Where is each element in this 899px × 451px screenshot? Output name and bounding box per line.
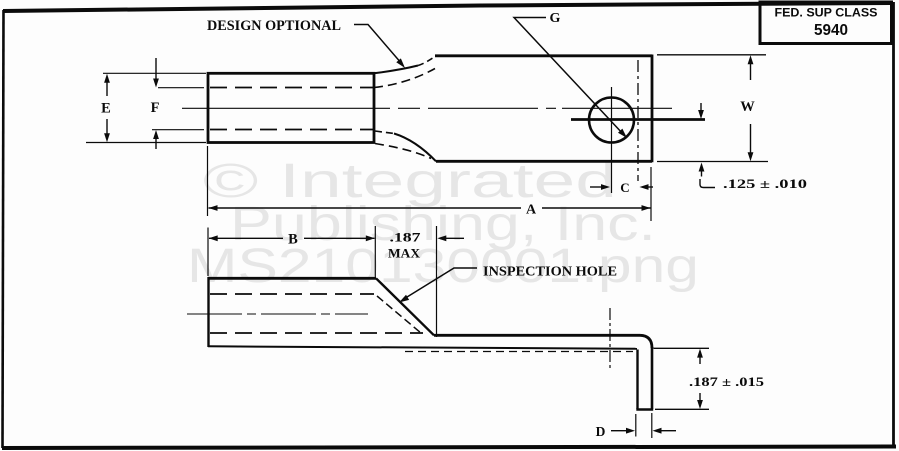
svg-text:.187: .187 xyxy=(390,230,422,245)
svg-text:INSPECTION HOLE: INSPECTION HOLE xyxy=(483,265,617,280)
svg-text:E: E xyxy=(101,101,111,117)
svg-text:F: F xyxy=(151,100,160,116)
svg-text:FED. SUP CLASS: FED. SUP CLASS xyxy=(775,6,878,20)
svg-text:A: A xyxy=(526,203,537,218)
svg-text:G: G xyxy=(550,11,561,26)
svg-text:DESIGN OPTIONAL: DESIGN OPTIONAL xyxy=(207,18,341,34)
svg-text:MAX: MAX xyxy=(388,246,421,261)
svg-text:C: C xyxy=(620,180,629,195)
svg-text:5940: 5940 xyxy=(814,22,848,39)
svg-text:W: W xyxy=(740,99,755,115)
svg-text:.125 ± .010: .125 ± .010 xyxy=(723,176,807,191)
svg-text:.187 ± .015: .187 ± .015 xyxy=(689,374,765,389)
svg-text:B: B xyxy=(288,232,298,248)
svg-text:D: D xyxy=(596,424,606,439)
svg-text:MS210130001.png: MS210130001.png xyxy=(187,240,699,293)
